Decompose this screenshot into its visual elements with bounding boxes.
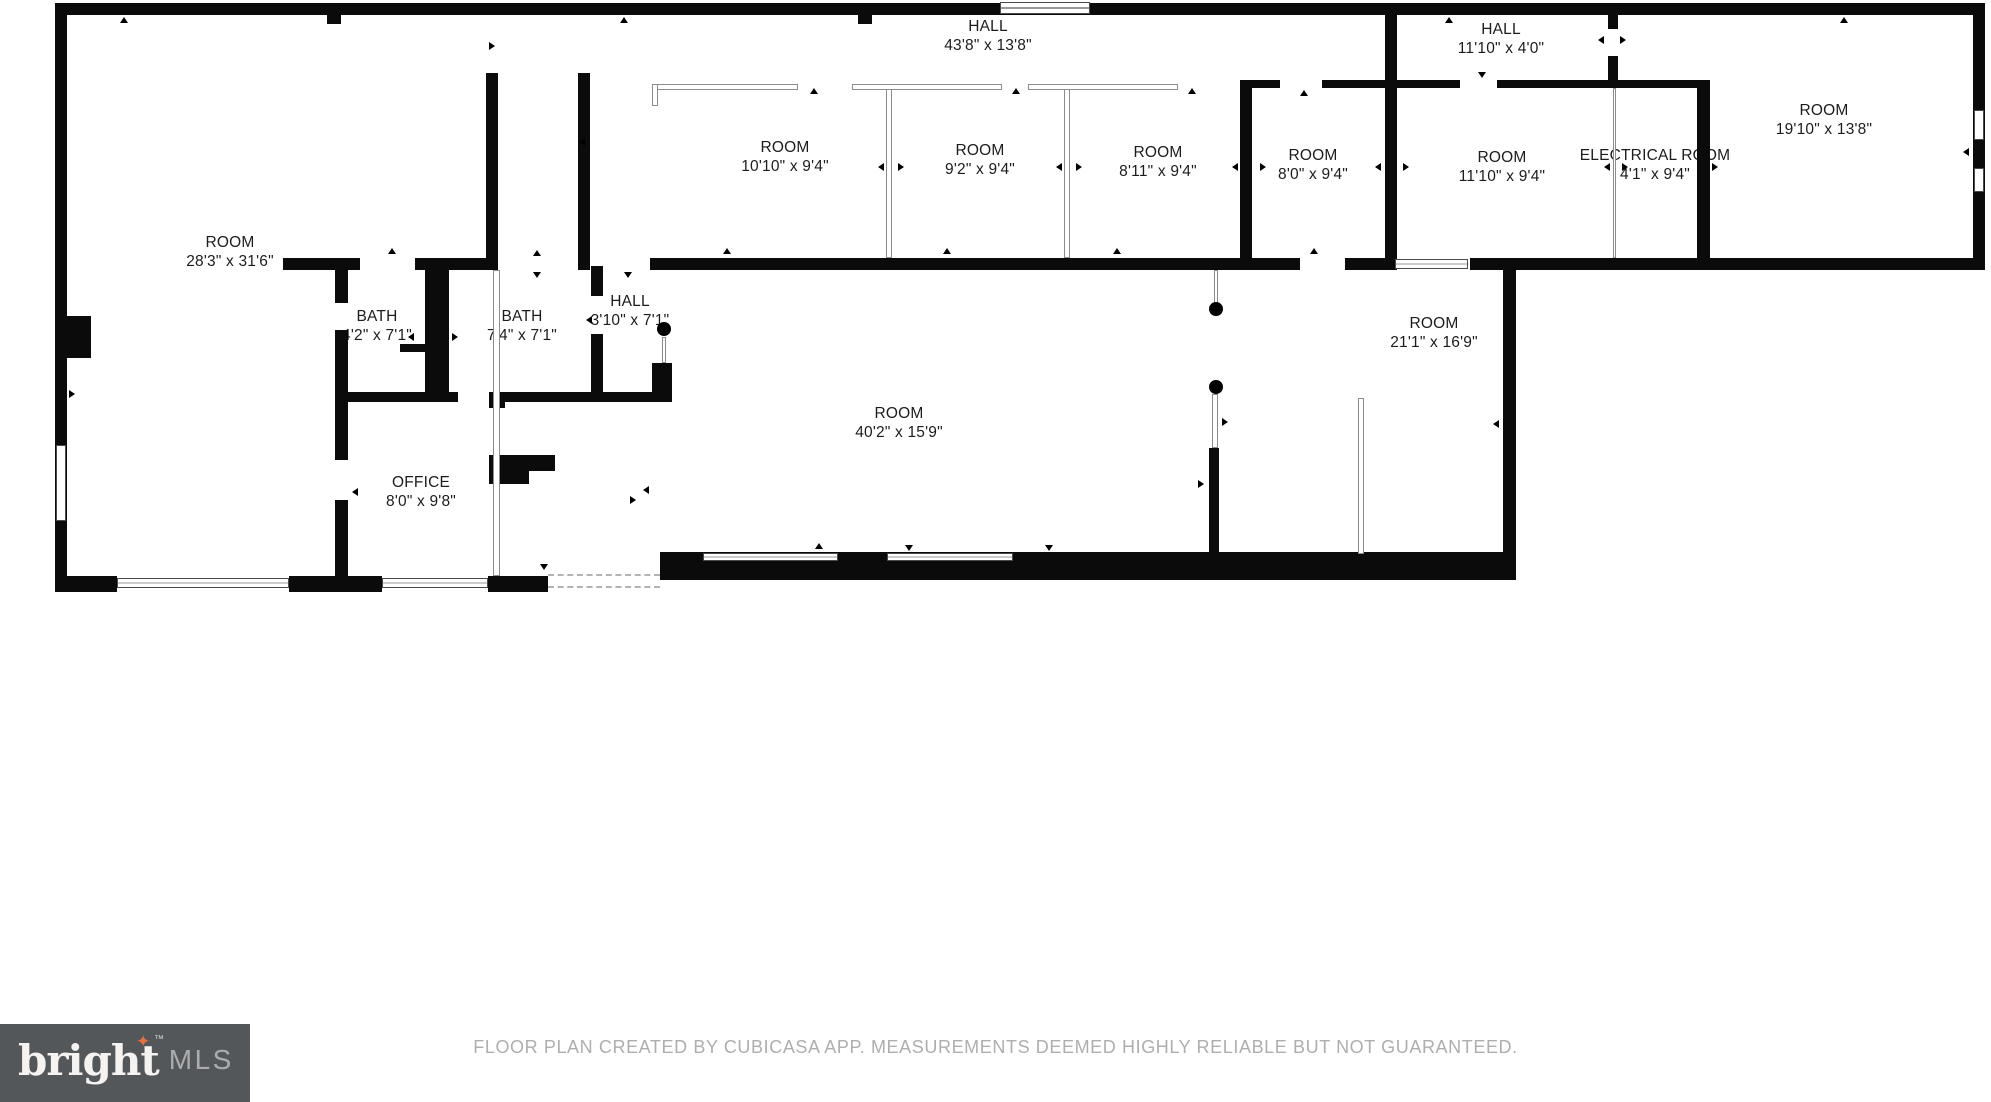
door-arrow-icon — [1300, 90, 1308, 96]
wall-segment — [1608, 56, 1618, 80]
window — [1974, 110, 1984, 140]
wall-segment — [289, 576, 322, 592]
window — [703, 553, 838, 561]
door-arrow-icon — [1604, 163, 1610, 171]
door-arrow-icon — [120, 17, 128, 23]
door-arrow-icon — [1310, 248, 1318, 254]
wall-segment — [335, 330, 348, 460]
partition-wall — [493, 270, 500, 576]
room-dims: 40'2" x 15'9" — [855, 424, 943, 443]
door-arrow-icon — [388, 248, 396, 254]
partition-wall — [886, 88, 892, 258]
door-arrow-icon — [943, 248, 951, 254]
door-arrow-icon — [1622, 163, 1628, 171]
partition-wall — [652, 84, 658, 106]
wall-segment — [1345, 258, 1395, 270]
wall-segment — [591, 334, 603, 392]
room-name: ROOM — [1278, 147, 1348, 166]
wall-segment — [652, 363, 672, 396]
room-dims: 8'0" x 9'8" — [386, 493, 456, 512]
door-arrow-icon — [1188, 88, 1196, 94]
wall-segment — [1697, 80, 1710, 270]
door-arrow-icon — [815, 543, 823, 549]
window — [887, 553, 1013, 561]
door-arrow-icon — [878, 163, 884, 171]
room-name: ROOM — [186, 234, 274, 253]
door-arrow-icon — [1012, 88, 1020, 94]
door-arrow-icon — [489, 42, 495, 50]
door-arrow-icon — [352, 488, 358, 496]
room-name: ROOM — [1459, 149, 1545, 168]
room-dims: 28'3" x 31'6" — [186, 253, 274, 272]
door-arrow-icon — [69, 390, 75, 398]
wall-segment — [425, 266, 449, 392]
room-dims: 9'2" x 9'4" — [945, 161, 1015, 180]
room-name: ROOM — [855, 405, 943, 424]
room-name: HALL — [1458, 21, 1544, 40]
door-arrow-icon — [1375, 163, 1381, 171]
door-hinge-icon — [1209, 380, 1223, 394]
wall-segment — [650, 258, 1300, 270]
room-name: ROOM — [1390, 315, 1478, 334]
door-arrow-icon — [540, 564, 548, 570]
door-arrow-icon — [1963, 148, 1969, 156]
wall-segment — [55, 576, 117, 592]
door-arrow-icon — [452, 333, 458, 341]
room-name: BATH — [342, 308, 412, 327]
door-arrow-icon — [643, 486, 649, 494]
wall-segment — [486, 73, 498, 270]
disclaimer-text: FLOOR PLAN CREATED BY CUBICASA APP. MEAS… — [0, 1037, 1991, 1058]
door-arrow-icon — [1840, 17, 1848, 23]
door-arrow-icon — [1620, 36, 1626, 44]
room-name: ROOM — [1776, 102, 1872, 121]
door-arrow-icon — [1403, 163, 1409, 171]
room-name: ROOM — [945, 142, 1015, 161]
room-dims: 11'10" x 4'0" — [1458, 40, 1544, 59]
room-dims: 8'11" x 9'4" — [1119, 163, 1197, 182]
partition-wall — [1358, 398, 1364, 554]
door-arrow-icon — [533, 250, 541, 256]
room-name: HALL — [944, 18, 1032, 37]
room-dims: 11'10" x 9'4" — [1459, 168, 1545, 187]
wall-segment — [1240, 80, 1252, 270]
window — [1000, 2, 1090, 14]
partition-wall — [662, 337, 666, 363]
room-label-80: ROOM8'0" x 9'4" — [1278, 147, 1348, 185]
door-arrow-icon — [1198, 480, 1204, 488]
bright-mls-logo: bright✦™MLS — [0, 1024, 250, 1102]
wall-segment — [1497, 80, 1710, 88]
door-arrow-icon — [579, 138, 585, 146]
door-hinge-icon — [1209, 302, 1223, 316]
door-arrow-icon — [1056, 163, 1062, 171]
door-arrow-icon — [1493, 420, 1499, 428]
door-arrow-icon — [408, 333, 414, 341]
room-dims: 19'10" x 13'8" — [1776, 121, 1872, 140]
window — [382, 578, 488, 588]
wall-segment — [1470, 258, 1985, 270]
door-arrow-icon — [905, 545, 913, 551]
room-label-hall-right: HALL11'10" x 4'0" — [1458, 21, 1544, 59]
partition-wall — [652, 84, 798, 90]
door-arrow-icon — [1445, 17, 1453, 23]
floor-plan-page: HALL43'8" x 13'8" HALL11'10" x 4'0" ROOM… — [0, 0, 1991, 1102]
wall-segment — [348, 392, 458, 402]
window — [56, 445, 66, 521]
door-arrow-icon — [1045, 545, 1053, 551]
room-dims: 43'8" x 13'8" — [944, 37, 1032, 56]
partition-wall — [1613, 88, 1616, 258]
door-arrow-icon — [1598, 36, 1604, 44]
door-arrow-icon — [533, 272, 541, 278]
room-dims: 21'1" x 16'9" — [1390, 334, 1478, 353]
door-arrow-icon — [1076, 163, 1082, 171]
door-arrow-icon — [1260, 163, 1266, 171]
wall-segment — [858, 15, 872, 24]
window — [1395, 259, 1468, 269]
wall-segment — [500, 392, 672, 402]
door-arrow-icon — [586, 316, 592, 324]
open-passage-dashes — [548, 586, 660, 588]
wall-segment — [578, 73, 590, 270]
wall-segment — [1322, 80, 1460, 88]
wall-segment — [335, 500, 348, 576]
wall-segment — [283, 258, 360, 270]
door-arrow-icon — [1712, 163, 1718, 171]
window — [117, 578, 289, 588]
partition-wall — [852, 84, 1002, 90]
wall-segment — [335, 266, 348, 303]
room-label-bath-1: BATH4'2" x 7'1" — [342, 308, 412, 346]
door-arrow-icon — [898, 163, 904, 171]
room-label-283: ROOM28'3" x 31'6" — [186, 234, 274, 272]
wall-segment — [1252, 80, 1280, 88]
room-label-211: ROOM21'1" x 16'9" — [1390, 315, 1478, 353]
room-dims: 4'2" x 7'1" — [342, 327, 412, 346]
door-arrow-icon — [1478, 72, 1486, 78]
wall-segment — [400, 344, 425, 352]
room-label-1110: ROOM11'10" x 9'4" — [1459, 149, 1545, 187]
wall-segment — [591, 266, 603, 296]
room-name: ROOM — [1119, 144, 1197, 163]
door-arrow-icon — [723, 248, 731, 254]
wall-segment — [67, 316, 91, 358]
partition-wall — [1028, 84, 1178, 90]
door-arrow-icon — [620, 17, 628, 23]
room-label-811: ROOM8'11" x 9'4" — [1119, 144, 1197, 182]
wall-segment — [1209, 448, 1219, 552]
door-arrow-icon — [624, 272, 632, 278]
room-label-office: OFFICE8'0" x 9'8" — [386, 474, 456, 512]
partition-wall — [1212, 394, 1218, 448]
room-label-1010: ROOM10'10" x 9'4" — [741, 139, 829, 177]
room-dims: 8'0" x 9'4" — [1278, 166, 1348, 185]
window — [1974, 168, 1984, 192]
wall-segment — [322, 576, 382, 592]
wall-segment — [1503, 266, 1516, 580]
door-arrow-icon — [630, 496, 636, 504]
wall-segment — [1385, 15, 1397, 270]
wall-segment — [1608, 15, 1618, 29]
partition-wall — [1214, 270, 1218, 303]
door-arrow-icon — [1222, 418, 1228, 426]
room-name: OFFICE — [386, 474, 456, 493]
wall-segment — [488, 576, 548, 592]
room-dims: 10'10" x 9'4" — [741, 158, 829, 177]
room-label-92: ROOM9'2" x 9'4" — [945, 142, 1015, 180]
door-hinge-icon — [657, 322, 671, 336]
partition-wall — [1064, 88, 1070, 258]
open-passage-dashes — [548, 574, 660, 576]
door-arrow-icon — [810, 88, 818, 94]
wall-segment — [327, 15, 341, 24]
room-label-1910: ROOM19'10" x 13'8" — [1776, 102, 1872, 140]
room-name: ROOM — [741, 139, 829, 158]
door-arrow-icon — [1232, 163, 1238, 171]
door-arrow-icon — [1113, 248, 1121, 254]
room-label-402: ROOM40'2" x 15'9" — [855, 405, 943, 443]
room-label-hall-top: HALL43'8" x 13'8" — [944, 18, 1032, 56]
